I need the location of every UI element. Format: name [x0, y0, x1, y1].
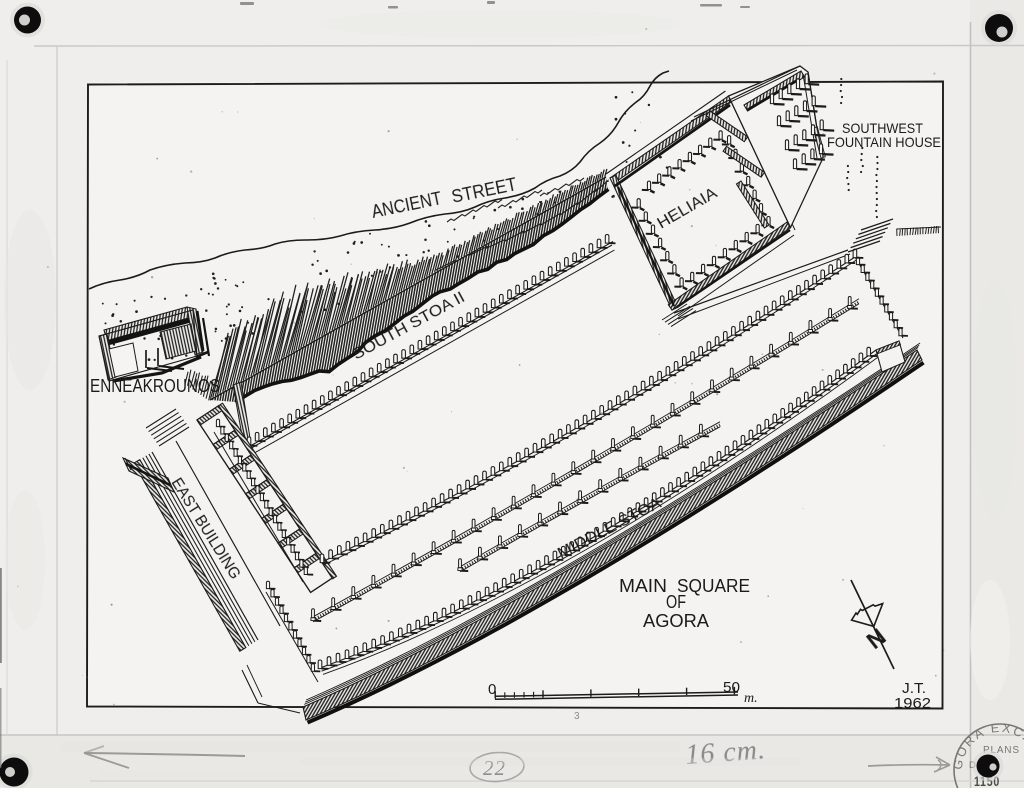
svg-text:3: 3 — [574, 711, 580, 722]
svg-text:AGORA: AGORA — [643, 611, 709, 631]
svg-text:m.: m. — [744, 691, 758, 706]
svg-text:50: 50 — [723, 679, 740, 696]
svg-text:FOUNTAIN HOUSE: FOUNTAIN HOUSE — [827, 134, 941, 150]
svg-text:SQUARE: SQUARE — [677, 576, 750, 596]
svg-text:OF: OF — [666, 592, 686, 612]
svg-text:0: 0 — [488, 681, 496, 698]
svg-text:1962: 1962 — [894, 695, 931, 712]
svg-text:ENNEAKROUNOS: ENNEAKROUNOS — [90, 376, 220, 396]
svg-text:MAIN: MAIN — [619, 576, 667, 596]
